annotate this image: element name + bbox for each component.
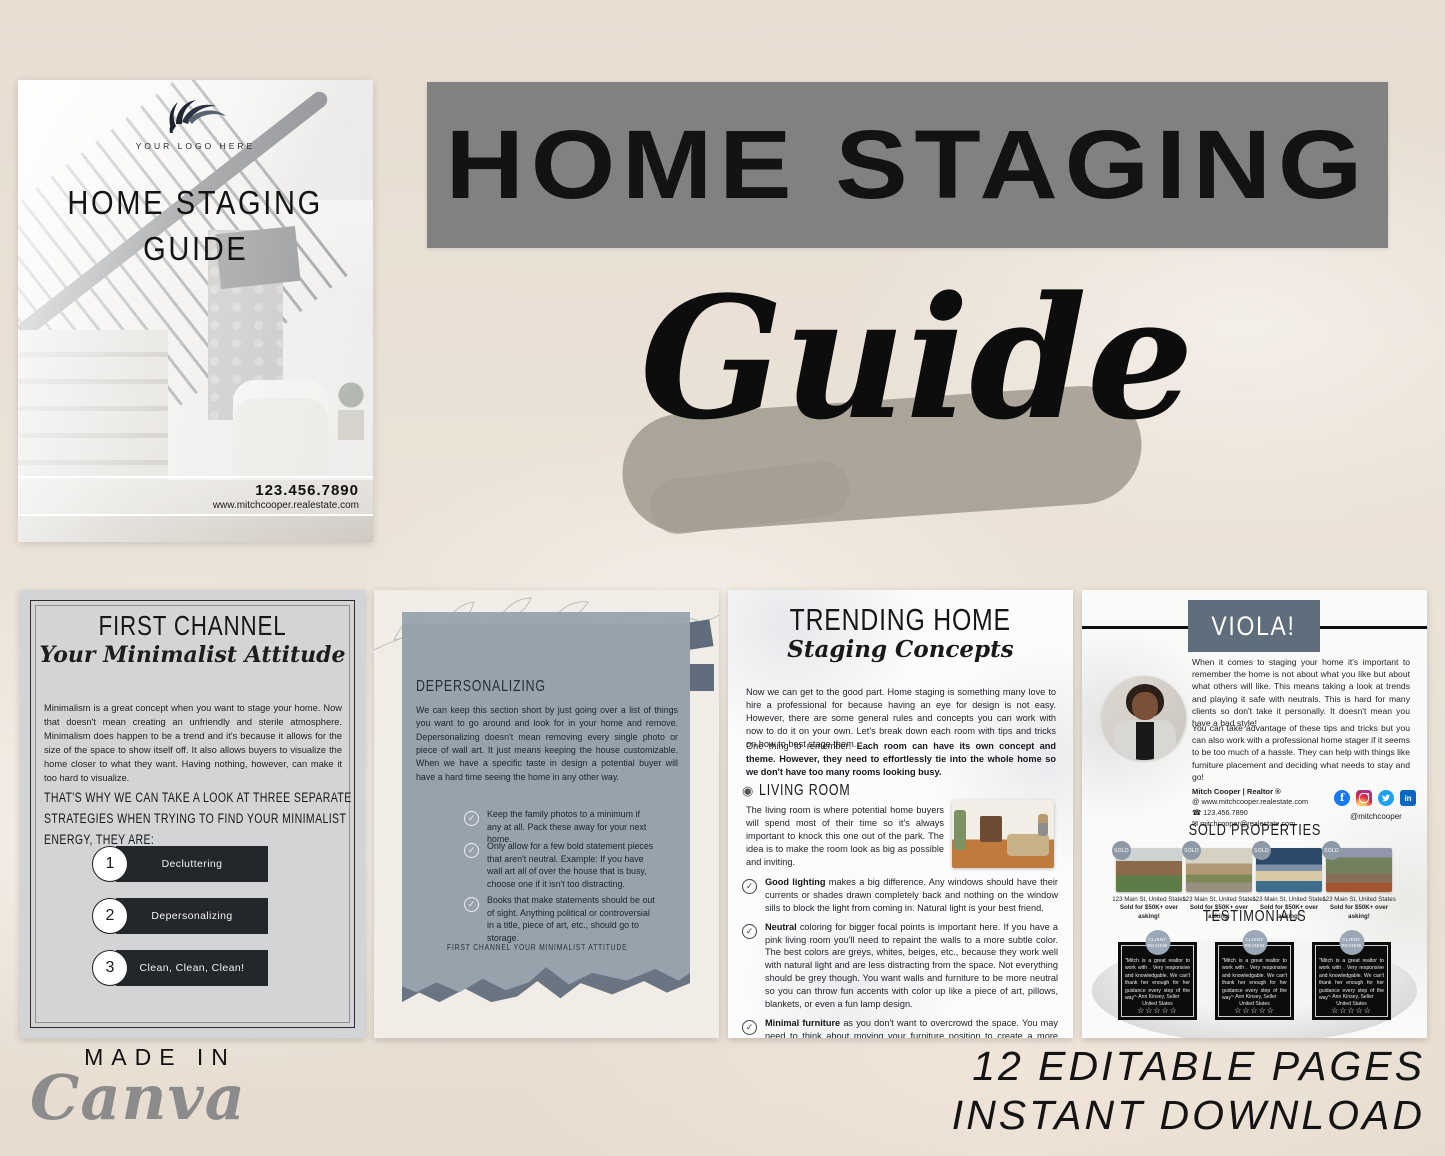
social-handle: @mitchcooper <box>1328 812 1424 821</box>
sold-badge: SOLD <box>1112 841 1131 860</box>
living-room-photo <box>952 800 1054 868</box>
cover-title-line1: HOME STAGING <box>68 180 323 226</box>
first-channel-strategies-intro: THAT'S WHY WE CAN TAKE A LOOK AT THREE S… <box>44 788 364 851</box>
living-room-photo-fireplace <box>980 816 1002 842</box>
globe-icon: @ <box>1192 797 1199 806</box>
first-channel-body: Minimalism is a great concept when you w… <box>44 702 342 786</box>
living-room-tips: ✓ Good lighting makes a big difference. … <box>742 876 1058 1038</box>
cover-title-line2: GUIDE <box>143 226 248 272</box>
step-number-1: 1 <box>92 846 128 882</box>
canva-wordmark: Canva <box>30 1061 290 1134</box>
testimonials-heading: TESTIMONIALS <box>1082 908 1427 926</box>
client-review-badge: CLIENT REVIEW <box>1242 930 1267 955</box>
sold-badge: SOLD <box>1252 841 1271 860</box>
instant-download-line: INSTANT DOWNLOAD <box>952 1091 1425 1140</box>
editable-pages-line: 12 EDITABLE PAGES <box>952 1042 1425 1091</box>
depersonalizing-footer: FIRST CHANNEL YOUR MINIMALIST ATTITUDE <box>447 942 673 952</box>
twitter-icon <box>1378 790 1394 806</box>
viola-title-box: VIOLA! <box>1188 600 1320 652</box>
step-number-2: 2 <box>92 898 128 934</box>
check-circle-icon: ✓ <box>742 1020 757 1035</box>
hero-script-title: Guide <box>640 258 1120 460</box>
sold-property-photo: SOLD <box>1256 848 1322 892</box>
hero-banner-title: HOME STAGING <box>446 109 1370 221</box>
page-trending-home: TRENDING HOME Staging Concepts Now we ca… <box>728 590 1073 1038</box>
instagram-icon <box>1356 790 1372 806</box>
contact-website: @ www.mitchcooper.realestate.com <box>1192 797 1332 808</box>
cover-logo: YOUR LOGO HERE <box>18 94 373 151</box>
hero-banner: HOME STAGING <box>427 82 1388 248</box>
check-circle-icon: ✓ <box>464 811 479 826</box>
title-rule-right <box>1320 626 1427 629</box>
facebook-icon: f <box>1334 790 1350 806</box>
client-review-badge: CLIENT REVIEW <box>1339 930 1364 955</box>
cover-website: www.mitchcooper.realestate.com <box>213 500 359 511</box>
star-rating: ☆☆☆☆☆ <box>1215 1006 1294 1015</box>
depersonalizing-body: We can keep this section short by just g… <box>416 704 678 784</box>
trending-title: TRENDING HOME <box>728 602 1073 638</box>
trending-reminder: One thing to remember: Each room can hav… <box>746 740 1056 779</box>
testimonial-card: CLIENT REVIEW "Mitch is a great realtor … <box>1312 942 1391 1020</box>
logo-swirl-icon <box>158 94 234 134</box>
living-room-photo-couch <box>1007 834 1049 856</box>
checklist-item: ✓ Books that make statements should be o… <box>464 894 656 945</box>
viola-paragraph-1: When it comes to staging your home it's … <box>1192 656 1410 729</box>
viola-paragraph-2: You can take advantage of these tips and… <box>1192 722 1410 783</box>
tip-item: ✓ Neutral coloring for bigger focal poin… <box>742 921 1058 1011</box>
realtor-portrait <box>1102 676 1186 760</box>
depersonalizing-title: DEPERSONALIZING <box>416 678 578 696</box>
check-circle-icon: ✓ <box>742 924 757 939</box>
contact-phone: ☎ 123.456.7890 <box>1192 808 1332 819</box>
social-icons: f in <box>1334 790 1418 806</box>
sold-property-photo: SOLD <box>1116 848 1182 892</box>
star-rating: ☆☆☆☆☆ <box>1312 1006 1391 1015</box>
living-room-photo-lamp <box>1038 814 1048 836</box>
check-circle-icon: ✓ <box>464 843 479 858</box>
page-depersonalizing: DEPERSONALIZING We can keep this section… <box>374 590 719 1038</box>
cover-logo-text: YOUR LOGO HERE <box>18 141 373 151</box>
phone-icon: ☎ <box>1192 808 1201 817</box>
step-box-3: Clean, Clean, Clean! <box>116 950 268 986</box>
sold-badge: SOLD <box>1322 841 1341 860</box>
step-box-2: Depersonalizing <box>116 898 268 934</box>
linkedin-icon: in <box>1400 790 1416 806</box>
tip-item: ✓ Minimal furniture as you don't want to… <box>742 1017 1058 1038</box>
check-circle-icon: ✓ <box>464 897 479 912</box>
step-number-3: 3 <box>92 950 128 986</box>
page-first-channel: FIRST CHANNEL Your Minimalist Attitude M… <box>20 590 365 1038</box>
cover-title: HOME STAGING GUIDE <box>18 180 373 272</box>
made-in-canva: MADE IN Canva <box>30 1044 290 1134</box>
tip-item: ✓ Good lighting makes a big difference. … <box>742 876 1058 915</box>
cover-contact-band: 123.456.7890 www.mitchcooper.realestate.… <box>18 476 373 516</box>
checklist-item: ✓ Only allow for a few bold statement pi… <box>464 840 656 891</box>
torn-paper-panel: DEPERSONALIZING We can keep this section… <box>402 612 690 998</box>
sold-badge: SOLD <box>1182 841 1201 860</box>
bullseye-icon: ◉ <box>742 783 753 799</box>
living-room-body: The living room is where potential home … <box>746 804 944 869</box>
portrait-face <box>1132 692 1158 720</box>
step-box-1: Decluttering <box>116 846 268 882</box>
living-room-photo-plant <box>954 810 966 850</box>
sold-property-photo: SOLD <box>1186 848 1252 892</box>
testimonial-card: CLIENT REVIEW "Mitch is a great realtor … <box>1118 942 1197 1020</box>
contact-name: Mitch Cooper | Realtor ® <box>1192 786 1332 797</box>
trending-subtitle: Staging Concepts <box>728 636 1073 663</box>
sold-property-photo: SOLD <box>1326 848 1392 892</box>
sold-properties-heading: SOLD PROPERTIES <box>1082 822 1427 840</box>
product-note: 12 EDITABLE PAGES INSTANT DOWNLOAD <box>952 1042 1425 1140</box>
star-rating: ☆☆☆☆☆ <box>1118 1006 1197 1015</box>
title-rule-left <box>1082 626 1188 629</box>
cover-page-thumbnail: YOUR LOGO HERE HOME STAGING GUIDE 123.45… <box>18 80 373 542</box>
portrait-shirt <box>1136 722 1154 760</box>
viola-title: VIOLA! <box>1212 611 1296 642</box>
cover-phone: 123.456.7890 <box>255 482 359 499</box>
first-channel-title: FIRST CHANNEL <box>20 610 365 642</box>
listing-image: YOUR LOGO HERE HOME STAGING GUIDE 123.45… <box>0 0 1445 1156</box>
page-viola: VIOLA! When it comes to staging your hom… <box>1082 590 1427 1038</box>
check-circle-icon: ✓ <box>742 879 757 894</box>
living-room-heading: ◉ LIVING ROOM <box>742 782 874 800</box>
testimonial-card: CLIENT REVIEW "Mitch is a great realtor … <box>1215 942 1294 1020</box>
first-channel-subtitle: Your Minimalist Attitude <box>20 642 365 668</box>
client-review-badge: CLIENT REVIEW <box>1145 930 1170 955</box>
